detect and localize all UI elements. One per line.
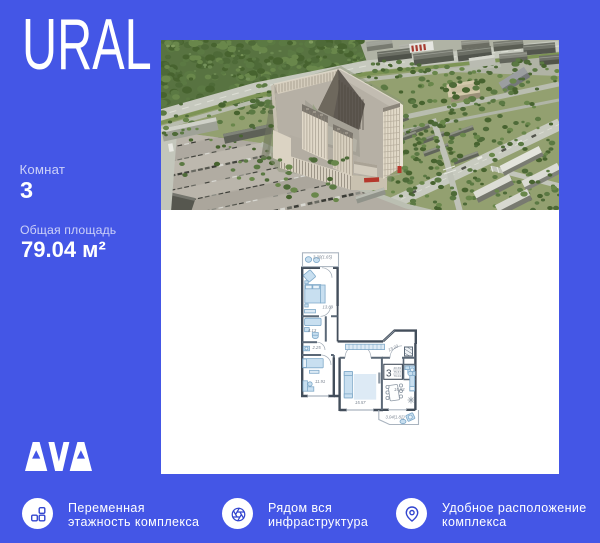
svg-text:3.30(1.65): 3.30(1.65) [313, 254, 333, 259]
svg-text:15.53: 15.53 [394, 387, 405, 392]
svg-text:3: 3 [386, 369, 392, 380]
svg-text:3.04(1.82): 3.04(1.82) [386, 415, 406, 420]
svg-text:13.69: 13.69 [323, 305, 334, 310]
svg-text:15.57: 15.57 [355, 400, 366, 405]
svg-text:4.13: 4.13 [308, 328, 317, 333]
svg-text:2.25: 2.25 [312, 345, 322, 350]
svg-text:13.22: 13.22 [387, 343, 399, 352]
svg-text:79.04: 79.04 [394, 374, 402, 378]
svg-text:11.91: 11.91 [315, 379, 325, 384]
